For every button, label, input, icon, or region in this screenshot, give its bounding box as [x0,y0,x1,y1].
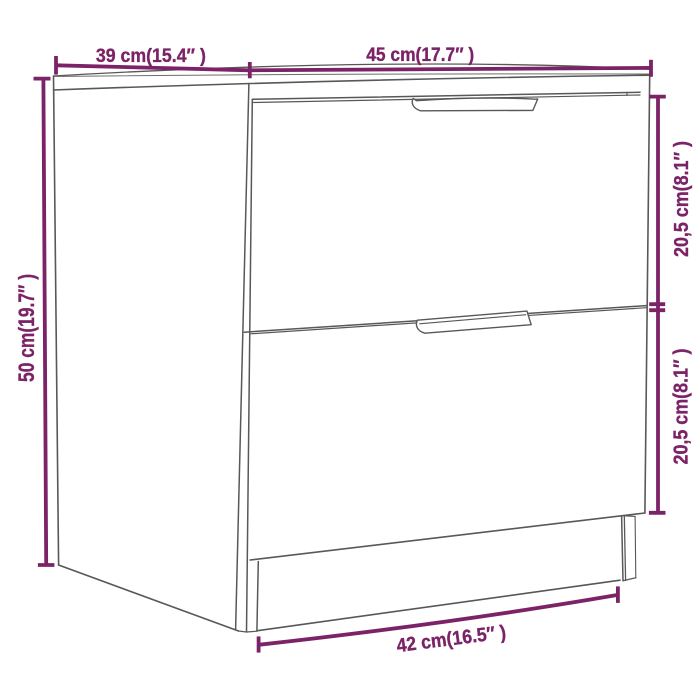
svg-text:45 cm(17.7″ ): 45 cm(17.7″ ) [366,44,474,66]
svg-text:20,5 cm(8.1″ ): 20,5 cm(8.1″ ) [671,141,693,257]
svg-text:50 cm(19.7″ ): 50 cm(19.7″ ) [14,274,39,382]
svg-text:20,5 cm(8.1″ ): 20,5 cm(8.1″ ) [671,349,693,465]
svg-text:39 cm(15.4″ ): 39 cm(15.4″ ) [96,45,206,67]
